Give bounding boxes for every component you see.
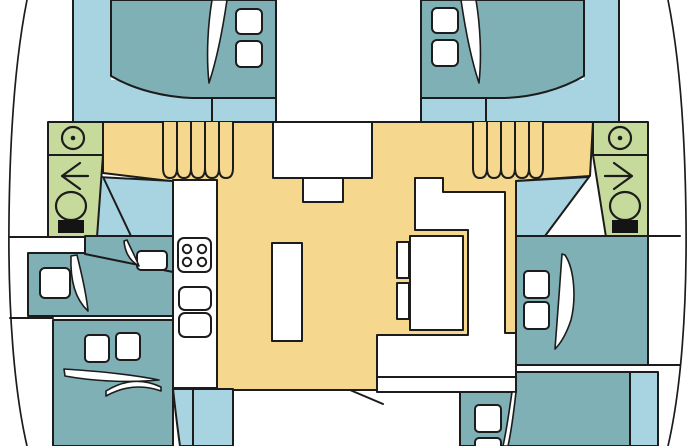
floor-plan-canvas — [0, 0, 695, 446]
step — [191, 122, 205, 178]
bathroom-port — [48, 122, 103, 237]
bow-cabin-starboard — [421, 0, 619, 122]
pillow — [116, 333, 140, 360]
companionway-step — [303, 178, 343, 202]
cabin-floor — [73, 0, 111, 122]
step — [205, 122, 219, 178]
sink-icon — [179, 287, 211, 310]
step — [473, 122, 487, 178]
pillow — [524, 302, 549, 329]
bow-cabin-port — [73, 0, 276, 122]
cabin-floor — [630, 372, 658, 446]
shower-icon-dot — [71, 136, 76, 141]
pillow — [524, 271, 549, 298]
cabin-floor — [584, 0, 619, 122]
cabin-bed — [53, 320, 173, 446]
pillow — [40, 268, 70, 298]
toilet-seat — [612, 220, 638, 233]
step — [163, 122, 177, 178]
pillow — [475, 438, 501, 446]
stairs-port — [163, 122, 233, 178]
pillow — [432, 8, 458, 33]
stairs-starboard — [473, 122, 543, 178]
pillow — [137, 251, 167, 270]
step — [501, 122, 515, 178]
corridor-port — [93, 177, 173, 236]
pillow — [236, 9, 262, 34]
step — [487, 122, 501, 178]
cabin-floor — [173, 389, 233, 446]
sink-icon — [179, 313, 211, 337]
shower-icon-dot — [618, 136, 623, 141]
stove-icon — [178, 238, 211, 272]
pillow — [85, 335, 109, 362]
pillow — [236, 41, 262, 67]
galley-counter — [173, 180, 217, 388]
step — [219, 122, 233, 178]
step — [177, 122, 191, 178]
chair — [397, 242, 409, 278]
step — [515, 122, 529, 178]
bow-center-locker — [275, 0, 421, 122]
salon-table — [410, 236, 463, 330]
toilet-seat — [58, 220, 84, 233]
step — [529, 122, 543, 178]
chair — [397, 283, 409, 319]
pillow — [432, 40, 458, 66]
galley-island — [272, 243, 302, 341]
catamaran-floor-plan — [0, 0, 695, 446]
companionway-hatch — [273, 122, 372, 178]
pillow — [475, 405, 501, 432]
cabin-bed — [516, 236, 648, 365]
